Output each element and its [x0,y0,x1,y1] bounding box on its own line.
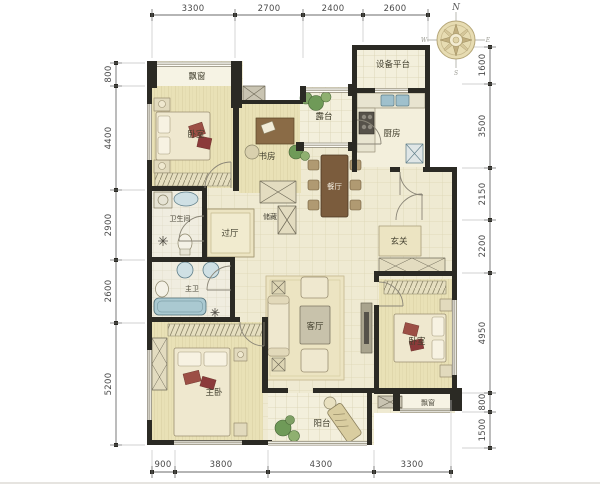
window [147,104,152,160]
dim-right-2: 2150 [478,183,488,206]
window [375,88,408,93]
wardrobe [152,338,167,390]
wardrobe [384,281,446,294]
chair [245,145,259,159]
dim-right-3: 2200 [478,235,488,258]
dim-bottom-0: 900 [154,460,171,470]
toilet [156,281,169,297]
dim-left-0: 800 [104,65,114,82]
sofa [268,296,289,356]
compass-east-label: E [485,37,491,44]
stove [359,112,374,134]
sink [396,95,409,106]
nightstand [440,299,452,311]
window [452,300,457,375]
room-label-master-bedroom: 主卧 [205,387,223,398]
compass-north-label: N [451,3,461,13]
dim-left-3: 2600 [104,280,114,303]
compass-west-label: W [421,37,428,44]
window [157,62,231,67]
floor-plan-svg: 飘窗 卧室 书房 露台 设备平台 厨房 餐厅 玄关 过厅 储藏 卫生间 主卫 客… [0,0,600,489]
dim-right-6: 1500 [478,419,488,442]
room-label-terrace: 露台 [315,111,332,122]
dim-top-3: 2600 [384,4,407,14]
room-label-bay-nw: 飘窗 [188,71,205,82]
room-label-bay-se: 飘窗 [421,398,435,407]
armchair [301,277,328,298]
dim-top-1: 2700 [258,4,281,14]
equipment-platform-floor [357,50,425,90]
window [174,441,242,446]
dim-left-2: 2900 [104,214,114,237]
dim-bottom-3: 3300 [401,460,424,470]
dim-right-5: 800 [478,393,488,410]
sink [203,262,219,278]
dim-right-1: 3500 [478,115,488,138]
room-label-equipment-platform: 设备平台 [376,59,410,70]
dim-right-0: 1600 [478,54,488,77]
window [400,409,450,413]
bathtub [154,298,206,315]
room-label-bathroom: 卫生间 [170,214,191,223]
nightstand [234,423,247,436]
nightstand [440,365,452,377]
floor-plan-image: 飘窗 卧室 书房 露台 设备平台 厨房 餐厅 玄关 过厅 储藏 卫生间 主卫 客… [0,0,600,489]
room-label-dining: 餐厅 [327,182,342,191]
dim-right-4: 4950 [478,322,488,345]
room-label-hallway: 过厅 [221,228,239,239]
room-label-bedroom-e: 卧室 [408,336,426,347]
dim-top-0: 3300 [182,4,205,14]
desk [256,118,294,144]
dim-left-1: 4400 [104,127,114,150]
window [304,143,348,148]
room-label-foyer: 玄关 [390,236,408,247]
washer [154,192,172,208]
room-label-balcony: 阳台 [313,418,330,429]
sink [174,192,198,206]
shower-head [158,236,168,246]
dim-top-2: 2400 [322,4,345,14]
wardrobe [155,173,231,186]
dim-bottom-2: 4300 [310,460,333,470]
compass-south-label: S [454,70,458,77]
room-label-kitchen: 厨房 [383,128,400,139]
dim-left-4: 5200 [104,373,114,396]
room-label-bedroom-nw: 卧室 [187,129,205,140]
window [268,441,367,446]
sink [177,262,193,278]
sink [381,95,394,106]
window [147,350,152,420]
room-label-master-bath: 主卫 [185,284,199,293]
room-label-storage: 储藏 [263,212,277,221]
dim-bottom-1: 3800 [210,460,233,470]
window [306,88,348,93]
closet-rod [168,324,264,336]
armchair [301,349,328,372]
room-label-living: 客厅 [306,321,324,332]
room-label-study: 书房 [258,151,275,162]
